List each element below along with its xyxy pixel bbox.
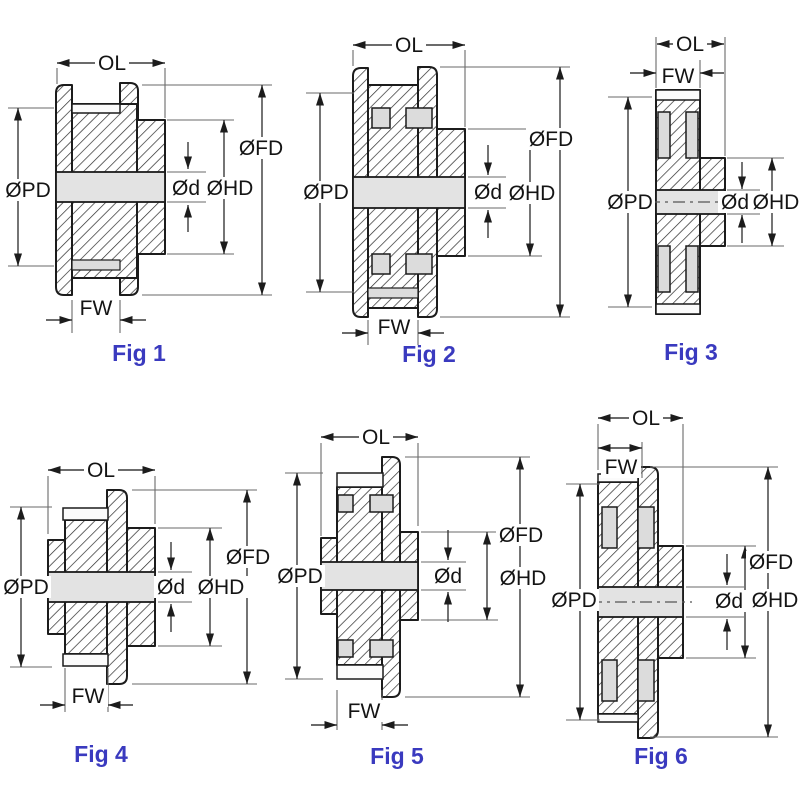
svg-text:ØPD: ØPD [303,181,349,204]
svg-text:Ød: Ød [434,565,462,588]
fig4-caption: Fig 4 [74,741,128,767]
svg-text:ØHD: ØHD [207,177,254,200]
fig6-recess [602,507,617,548]
fig1-tooth-band-bottom [72,260,120,270]
fig5-label-hd: ØHD [496,567,550,590]
diagram-svg: OL ØPD ØFD ØHD Ød FW Fig 1 [0,0,800,800]
fig3-tooth-band-bottom [656,304,700,314]
fig6-label-fd: ØFD [746,551,796,574]
fig2-bore [353,177,465,208]
fig2-tooth-band-bottom [368,288,418,298]
fig5-recess [338,495,353,512]
svg-text:Ød: Ød [157,576,185,599]
svg-text:ØFD: ØFD [226,546,270,569]
fig2-recess [372,108,390,128]
svg-text:ØPD: ØPD [5,179,51,202]
fig2-label-pd: ØPD [301,181,351,204]
fig5-label-fw: FW [344,700,384,723]
svg-text:ØFD: ØFD [499,524,543,547]
fig5-tooth-band-top [337,473,383,487]
fig1-drawing: OL ØPD ØFD ØHD Ød FW Fig 1 [3,52,286,366]
svg-text:ØPD: ØPD [607,191,653,214]
fig5-label-pd: ØPD [275,565,325,588]
svg-text:Ød: Ød [715,590,743,613]
fig1-tooth-band-top [72,104,120,113]
pulley-dimension-diagram: OL ØPD ØFD ØHD Ød FW Fig 1 [0,0,800,800]
fig1-label-d: Ød [169,177,203,200]
svg-text:OL: OL [87,459,115,482]
fig2-caption: Fig 2 [402,341,456,367]
svg-text:ØPD: ØPD [551,589,597,612]
fig3-caption: Fig 3 [664,339,718,365]
svg-text:ØHD: ØHD [753,191,800,214]
svg-text:FW: FW [378,316,411,339]
svg-text:ØPD: ØPD [277,565,323,588]
svg-text:ØHD: ØHD [509,182,556,205]
fig2-drawing: OL ØPD ØFD ØHD Ød FW Fig 2 [301,34,576,367]
svg-text:Ød: Ød [721,191,749,214]
fig5-tooth-band-bottom [337,665,383,679]
fig6-caption: Fig 6 [634,743,688,769]
fig3-label-fw: FW [658,65,698,88]
svg-text:ØHD: ØHD [500,567,547,590]
svg-text:FW: FW [662,65,695,88]
fig3-drawing: OL FW ØPD Ød ØHD Fig 3 [605,33,799,365]
svg-text:ØFD: ØFD [239,137,283,160]
svg-text:OL: OL [98,52,126,75]
fig5-label-fd: ØFD [496,524,546,547]
fig5-recess [370,495,393,512]
svg-text:OL: OL [362,426,390,449]
fig1-body [56,83,165,295]
fig5-label-ol: OL [359,426,393,449]
fig6-tooth-band-bottom [598,714,638,722]
fig6-label-hd: ØHD [751,589,799,612]
fig6-label-ol: OL [629,407,663,430]
svg-text:ØHD: ØHD [752,589,799,612]
fig5-bore [321,562,418,590]
svg-text:OL: OL [395,34,423,57]
svg-text:ØHD: ØHD [198,576,245,599]
fig3-label-hd: ØHD [753,191,800,214]
fig4-label-d: Ød [154,576,188,599]
fig6-recess [638,507,654,548]
fig1-label-fw: FW [76,297,116,320]
svg-text:ØPD: ØPD [3,576,49,599]
fig6-body [590,467,692,738]
fig1-caption: Fig 1 [112,340,166,366]
fig2-label-d: Ød [471,181,505,204]
fig2-label-fd: ØFD [526,128,576,151]
fig2-recess [406,108,432,128]
fig5-body [321,457,418,697]
svg-text:Ød: Ød [474,181,502,204]
svg-text:ØFD: ØFD [529,128,573,151]
fig3-label-ol: OL [673,33,707,56]
svg-text:FW: FW [72,685,105,708]
fig2-label-ol: OL [392,34,426,57]
fig6-recess [638,660,654,701]
fig3-recess [658,246,670,292]
svg-text:FW: FW [605,456,638,479]
fig3-recess [686,246,698,292]
fig6-drawing: OL FW ØPD ØFD ØHD Ød Fig 6 [549,407,799,769]
svg-text:Ød: Ød [172,177,200,200]
fig5-caption: Fig 5 [370,743,424,769]
fig1-bore [56,172,165,202]
fig2-label-fw: FW [374,316,414,339]
fig1-label-ol: OL [95,52,129,75]
fig2-recess [372,254,390,274]
fig6-label-fw: FW [601,456,641,479]
fig4-label-hd: ØHD [194,576,248,599]
fig3-label-d: Ød [718,191,752,214]
fig4-body [48,490,155,684]
fig6-label-d: Ød [712,590,746,613]
svg-text:OL: OL [632,407,660,430]
svg-text:FW: FW [80,297,113,320]
fig4-drawing: OL ØPD ØFD ØHD Ød FW Fig 4 [1,459,273,767]
fig1-label-hd: ØHD [203,177,257,200]
fig3-recess [686,112,698,158]
fig4-label-pd: ØPD [1,576,51,599]
fig6-recess [602,660,617,701]
fig5-label-d: Ød [431,565,465,588]
fig1-label-pd: ØPD [3,179,53,202]
fig5-recess [370,640,393,657]
fig4-bore [48,572,155,602]
fig5-recess [338,640,353,657]
svg-text:FW: FW [348,700,381,723]
fig2-recess [406,254,432,274]
fig4-label-fw: FW [68,685,108,708]
fig2-body [353,67,465,317]
fig4-tooth-band-bottom [63,654,108,666]
fig3-recess [658,112,670,158]
fig2-label-hd: ØHD [505,182,559,205]
fig4-tooth-band-top [63,508,108,520]
fig5-drawing: OL ØPD ØFD ØHD Ød FW Fig 5 [275,426,550,769]
fig3-label-pd: ØPD [605,191,655,214]
svg-text:ØFD: ØFD [749,551,793,574]
fig3-tooth-band-top [656,90,700,100]
svg-text:OL: OL [676,33,704,56]
fig1-label-fd: ØFD [236,137,286,160]
fig4-label-ol: OL [84,459,118,482]
fig6-label-pd: ØPD [549,589,599,612]
fig4-label-fd: ØFD [223,546,273,569]
